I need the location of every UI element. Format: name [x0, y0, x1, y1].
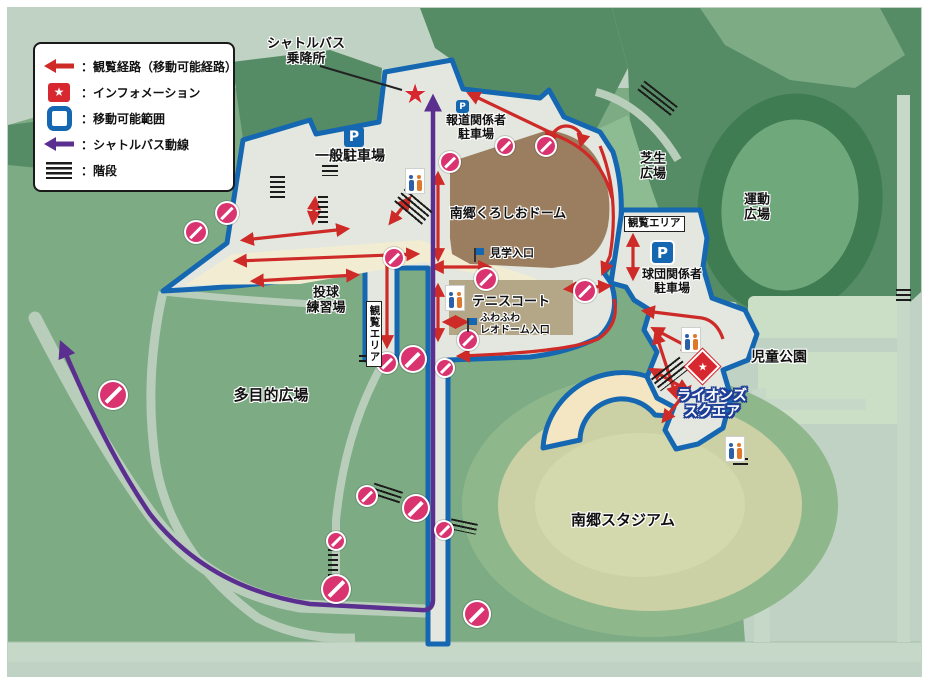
- information-star-icon: ★: [43, 83, 75, 102]
- no-entry-icon: [217, 203, 237, 223]
- viewing-route-arrow-icon: [43, 58, 75, 74]
- press-parking-line1: 報道関係者: [446, 113, 506, 127]
- legend-label: ：シャトルバス動線: [81, 136, 189, 153]
- legend-label: ：移動可能範囲: [81, 110, 165, 127]
- children-park-label: 児童公園: [751, 350, 807, 367]
- page-frame: [0, 0, 7, 684]
- no-entry-icon: [100, 382, 126, 408]
- tour-entrance-flag-icon: [474, 248, 486, 262]
- restroom-icon: [726, 437, 744, 461]
- star-glyph: ★: [698, 361, 708, 372]
- sports-plaza-label: 運動 広場: [744, 193, 770, 224]
- information-star-icon: ★: [403, 81, 427, 108]
- dome-label: 南郷くろしおドーム: [450, 206, 567, 221]
- restroom-icon: [406, 169, 424, 193]
- fuwafuwa-entrance-label: ふわふわ レオドーム入口: [480, 313, 550, 337]
- no-entry-icon: [476, 269, 496, 289]
- no-entry-icon: [401, 347, 425, 371]
- tour-entrance-label: 見学入口: [490, 248, 534, 261]
- legend-row-stairs: ：階段: [43, 157, 225, 183]
- viewing-area-right-label: 観覧エリア: [624, 216, 685, 232]
- shuttle-stop-line1: シャトルバス: [267, 37, 345, 52]
- legend-row-information: ★ ：インフォメーション: [43, 79, 225, 105]
- team-parking-line1: 球団関係者: [642, 267, 702, 281]
- stadium-label: 南郷スタジアム: [571, 512, 675, 530]
- no-entry-icon: [441, 153, 459, 171]
- parking-icon-team: P: [652, 242, 673, 263]
- page-frame: [922, 0, 929, 684]
- pitching-line2: 練習場: [306, 301, 345, 316]
- no-entry-icon: [575, 281, 595, 301]
- general-parking-label: 一般駐車場: [315, 149, 385, 166]
- no-entry-icon: [358, 487, 376, 505]
- legend-row-movable-range: ：移動可能範囲: [43, 105, 225, 131]
- movable-range-icon: [43, 106, 75, 131]
- no-entry-icon: [436, 522, 452, 538]
- star-glyph: ★: [54, 86, 65, 98]
- stairs-icon: [896, 289, 911, 301]
- no-entry-icon: [385, 249, 403, 267]
- no-entry-icon: [537, 137, 555, 155]
- no-entry-icon: [437, 360, 453, 376]
- shuttle-stop-label: シャトルバス 乗降所: [267, 37, 345, 68]
- legend-row-viewing-route: ：観覧経路（移動可能経路）: [43, 53, 225, 79]
- lions-square-line1: ライオンズ: [677, 388, 747, 404]
- no-entry-icon: [404, 496, 428, 520]
- legend-box: ：観覧経路（移動可能経路） ★ ：インフォメーション ：移動可能範囲 ：シャトル…: [33, 42, 235, 192]
- press-parking-line2: 駐車場: [446, 127, 506, 141]
- lawn-plaza-line1: 芝生: [640, 152, 666, 167]
- no-entry-icon: [323, 576, 349, 602]
- stairs-icon: [318, 196, 328, 224]
- stairs-icon: [328, 544, 338, 580]
- legend-label: ：階段: [81, 162, 117, 179]
- sports-plaza-line1: 運動: [744, 193, 770, 208]
- tennis-court-label: テニスコート: [472, 294, 550, 309]
- parking-icon-general: P: [344, 127, 364, 147]
- leo-dome-entrance-flag-icon: [467, 318, 479, 332]
- no-entry-icon: [459, 331, 477, 349]
- legend-label: ：観覧経路（移動可能経路）: [81, 58, 237, 75]
- restroom-icon: [682, 328, 700, 352]
- stairs-icon: [43, 162, 75, 179]
- stairs-icon: [270, 176, 285, 198]
- lawn-plaza-line2: 広場: [640, 167, 666, 182]
- restroom-icon: [446, 286, 464, 310]
- team-parking-label: 球団関係者 駐車場: [642, 267, 702, 295]
- pitching-practice-label: 投球 練習場: [306, 286, 345, 317]
- team-parking-line2: 駐車場: [642, 281, 702, 295]
- legend-label: ：インフォメーション: [81, 84, 200, 101]
- viewing-area-left-label: 観覧エリア: [366, 301, 382, 367]
- fuwafuwa-line2: レオドーム入口: [480, 325, 550, 337]
- page-frame: [0, 0, 929, 7]
- stairs-icon: [322, 165, 338, 176]
- shuttle-bus-route-arrow-icon: [43, 136, 75, 152]
- sports-plaza-line2: 広場: [744, 208, 770, 223]
- lawn-plaza-label: 芝生 広場: [640, 152, 666, 183]
- lions-square-label: ライオンズ スクエア: [677, 388, 747, 420]
- page-frame: [0, 677, 929, 684]
- legend-row-shuttle-route: ：シャトルバス動線: [43, 131, 225, 157]
- pitching-line1: 投球: [306, 286, 345, 301]
- fuwafuwa-line1: ふわふわ: [480, 313, 550, 325]
- multipurpose-plaza-label: 多目的広場: [233, 387, 308, 405]
- map-canvas: P P P ★ ★ シャトルバス 乗降所 一般駐車場 報道関係者 駐車場 南郷く…: [0, 0, 929, 684]
- shuttle-stop-line2: 乗降所: [267, 52, 345, 67]
- parking-icon-press: P: [456, 100, 469, 113]
- no-entry-icon: [465, 602, 489, 626]
- no-entry-icon: [186, 222, 206, 242]
- press-parking-label: 報道関係者 駐車場: [446, 113, 506, 141]
- lions-square-line2: スクエア: [677, 404, 747, 420]
- no-entry-icon: [328, 533, 344, 549]
